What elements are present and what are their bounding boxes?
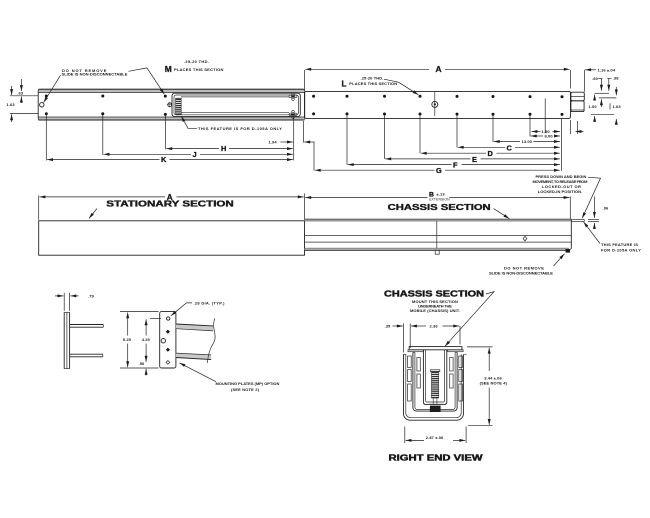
svg-text:.38: .38 <box>613 76 620 81</box>
svg-text:1.16 ±.04: 1.16 ±.04 <box>598 67 616 72</box>
svg-text:3.44 ±.06: 3.44 ±.06 <box>484 375 502 380</box>
svg-text:A: A <box>436 64 442 74</box>
svg-text:M: M <box>165 64 172 74</box>
svg-text:13.00: 13.00 <box>522 139 533 144</box>
svg-text:.63: .63 <box>17 90 24 95</box>
svg-text:F: F <box>453 161 458 170</box>
svg-text:THIS FEATURE IS FOR D-105A ONL: THIS FEATURE IS FOR D-105A ONLY <box>198 126 282 131</box>
svg-text:.06: .06 <box>603 205 610 210</box>
svg-text:G: G <box>436 166 442 175</box>
svg-text:5.25: 5.25 <box>123 337 132 342</box>
svg-text:E: E <box>472 155 477 164</box>
svg-text:.35: .35 <box>385 323 392 328</box>
svg-text:.25-20 THD.: .25-20 THD. <box>184 59 209 64</box>
svg-text:1.63: 1.63 <box>613 104 622 109</box>
svg-text:SLIDE IS NON-DISCONNECTABLE: SLIDE IS NON-DISCONNECTABLE <box>489 271 553 276</box>
svg-text:.69: .69 <box>592 76 599 81</box>
svg-text:CHASSIS SECTION: CHASSIS SECTION <box>388 203 491 212</box>
svg-text:CHASSIS SECTION: CHASSIS SECTION <box>384 290 484 299</box>
svg-text:(SEE NOTE 4): (SEE NOTE 4) <box>480 381 508 386</box>
svg-text:.28 DIA. (TYP.): .28 DIA. (TYP.) <box>194 301 226 306</box>
svg-text:.25-20 THD.: .25-20 THD. <box>361 76 384 81</box>
svg-text:SLIDE IS NON-DISCONNECTABLE: SLIDE IS NON-DISCONNECTABLE <box>62 72 128 77</box>
svg-text:(SEE NOTE 2): (SEE NOTE 2) <box>231 387 260 392</box>
svg-text:DO NOT REMOVE: DO NOT REMOVE <box>504 265 544 270</box>
svg-text:L: L <box>342 79 347 88</box>
svg-text:PLACES THIS SECTION: PLACES THIS SECTION <box>174 67 224 72</box>
svg-text:H: H <box>221 144 226 153</box>
svg-text:K: K <box>161 155 167 164</box>
svg-text:MOBILE (CHASSIS) UNIT.: MOBILE (CHASSIS) UNIT. <box>410 308 460 313</box>
svg-text:1.94: 1.94 <box>269 139 278 144</box>
svg-text:.50: .50 <box>139 361 146 366</box>
svg-text:C: C <box>507 143 513 152</box>
svg-text:STATIONARY SECTION: STATIONARY SECTION <box>106 199 234 208</box>
svg-text:4.25: 4.25 <box>142 337 151 342</box>
svg-text:8.00: 8.00 <box>545 134 554 139</box>
svg-text:.79: .79 <box>88 294 95 299</box>
svg-text:1.00: 1.00 <box>589 104 598 109</box>
svg-text:D: D <box>488 149 494 158</box>
svg-text:J: J <box>193 150 197 159</box>
svg-text:EXTENSION: EXTENSION <box>429 197 450 201</box>
svg-text:LOCKED-IN POSITION.: LOCKED-IN POSITION. <box>538 189 583 194</box>
svg-text:PLACES THIS SECTION: PLACES THIS SECTION <box>349 81 397 86</box>
svg-text:THIS FEATURE IS: THIS FEATURE IS <box>601 242 638 247</box>
svg-text:RIGHT END VIEW: RIGHT END VIEW <box>389 452 484 462</box>
svg-text:MOUNTING PLATES (MP) OPTION: MOUNTING PLATES (MP) OPTION <box>216 381 280 386</box>
svg-text:FOR D-105A ONLY: FOR D-105A ONLY <box>601 248 641 253</box>
svg-text:±.13: ±.13 <box>437 192 446 197</box>
svg-text:2.36: 2.36 <box>430 324 439 329</box>
svg-text:2.87 ±.06: 2.87 ±.06 <box>426 435 444 440</box>
svg-text:1.63: 1.63 <box>7 102 16 107</box>
